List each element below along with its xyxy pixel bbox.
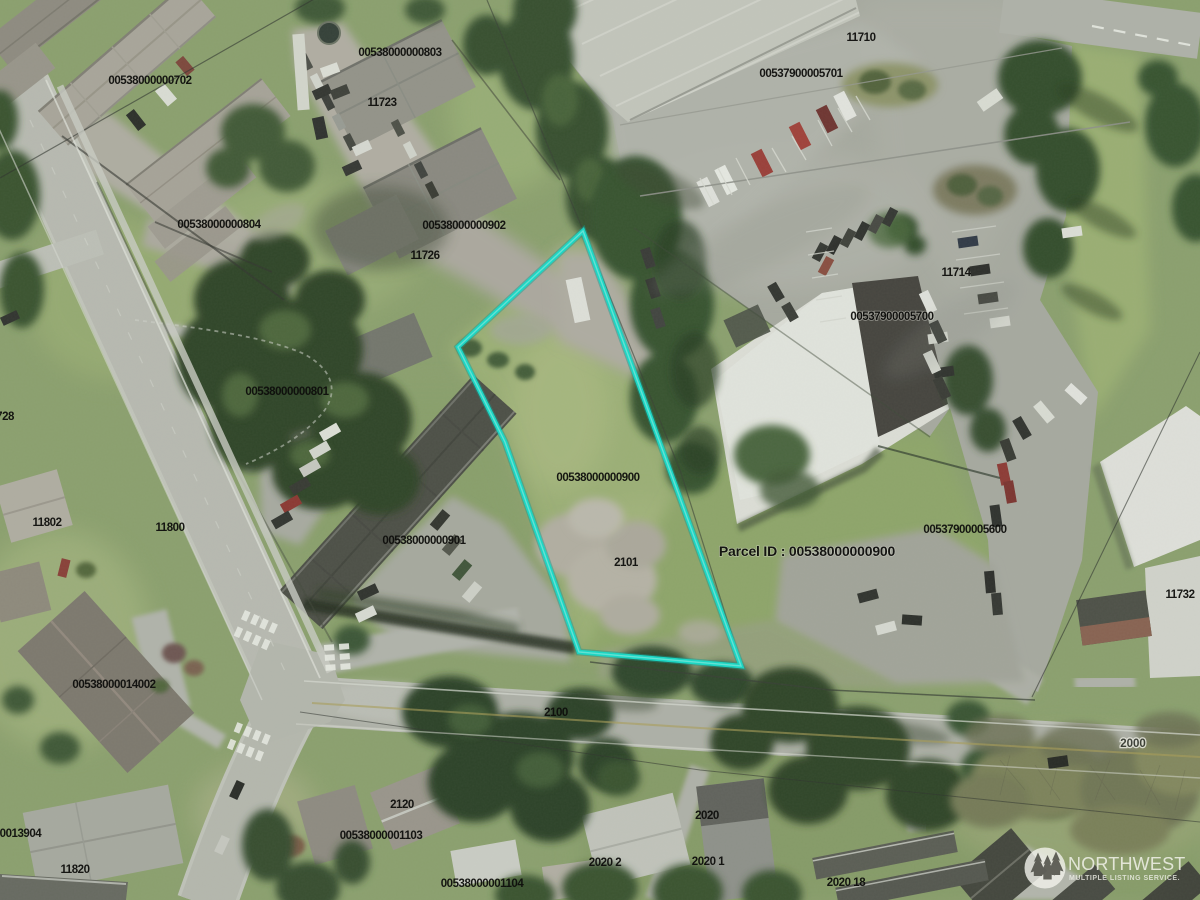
svg-text:11714: 11714 bbox=[941, 267, 971, 279]
svg-text:00537900005700: 00537900005700 bbox=[850, 311, 933, 323]
svg-text:00538000000901: 00538000000901 bbox=[382, 535, 466, 547]
svg-text:Parcel ID : 00538000000900: Parcel ID : 00538000000900 bbox=[719, 543, 896, 559]
svg-text:11723: 11723 bbox=[367, 97, 396, 109]
svg-text:00538000000804: 00538000000804 bbox=[177, 219, 261, 231]
svg-text:11710: 11710 bbox=[846, 32, 875, 44]
svg-text:11732: 11732 bbox=[1165, 589, 1194, 601]
svg-text:00537900005701: 00537900005701 bbox=[759, 68, 843, 80]
svg-text:00538000001104: 00538000001104 bbox=[441, 878, 525, 890]
svg-text:00538000000900: 00538000000900 bbox=[556, 472, 639, 484]
svg-text:2100: 2100 bbox=[544, 707, 568, 719]
svg-text:2020 2: 2020 2 bbox=[589, 857, 622, 869]
svg-text:NORTHWEST: NORTHWEST bbox=[1068, 854, 1185, 874]
svg-text:2020 18: 2020 18 bbox=[827, 877, 866, 889]
svg-text:00538000014002: 00538000014002 bbox=[72, 679, 155, 691]
svg-text:11800: 11800 bbox=[155, 522, 184, 534]
svg-text:00538000001103: 00538000001103 bbox=[340, 830, 423, 842]
svg-text:2101: 2101 bbox=[614, 557, 639, 569]
svg-text:2120: 2120 bbox=[390, 799, 414, 811]
svg-text:2000: 2000 bbox=[1120, 738, 1146, 750]
svg-text:2020: 2020 bbox=[695, 810, 719, 822]
svg-text:00538000013904: 00538000013904 bbox=[0, 828, 42, 840]
svg-text:2020 1: 2020 1 bbox=[692, 856, 726, 868]
svg-text:00538000000801: 00538000000801 bbox=[245, 386, 329, 398]
svg-text:00538000000803: 00538000000803 bbox=[358, 47, 441, 59]
svg-text:00537900005600: 00537900005600 bbox=[923, 524, 1006, 536]
svg-text:11820: 11820 bbox=[60, 864, 89, 876]
svg-text:00538000000702: 00538000000702 bbox=[108, 75, 191, 87]
svg-text:MULTIPLE LISTING SERVICE.: MULTIPLE LISTING SERVICE. bbox=[1069, 875, 1180, 882]
svg-text:11726: 11726 bbox=[410, 250, 439, 262]
svg-text:11728: 11728 bbox=[0, 411, 15, 423]
svg-text:11802: 11802 bbox=[32, 517, 61, 529]
svg-text:00538000000902: 00538000000902 bbox=[422, 220, 505, 232]
